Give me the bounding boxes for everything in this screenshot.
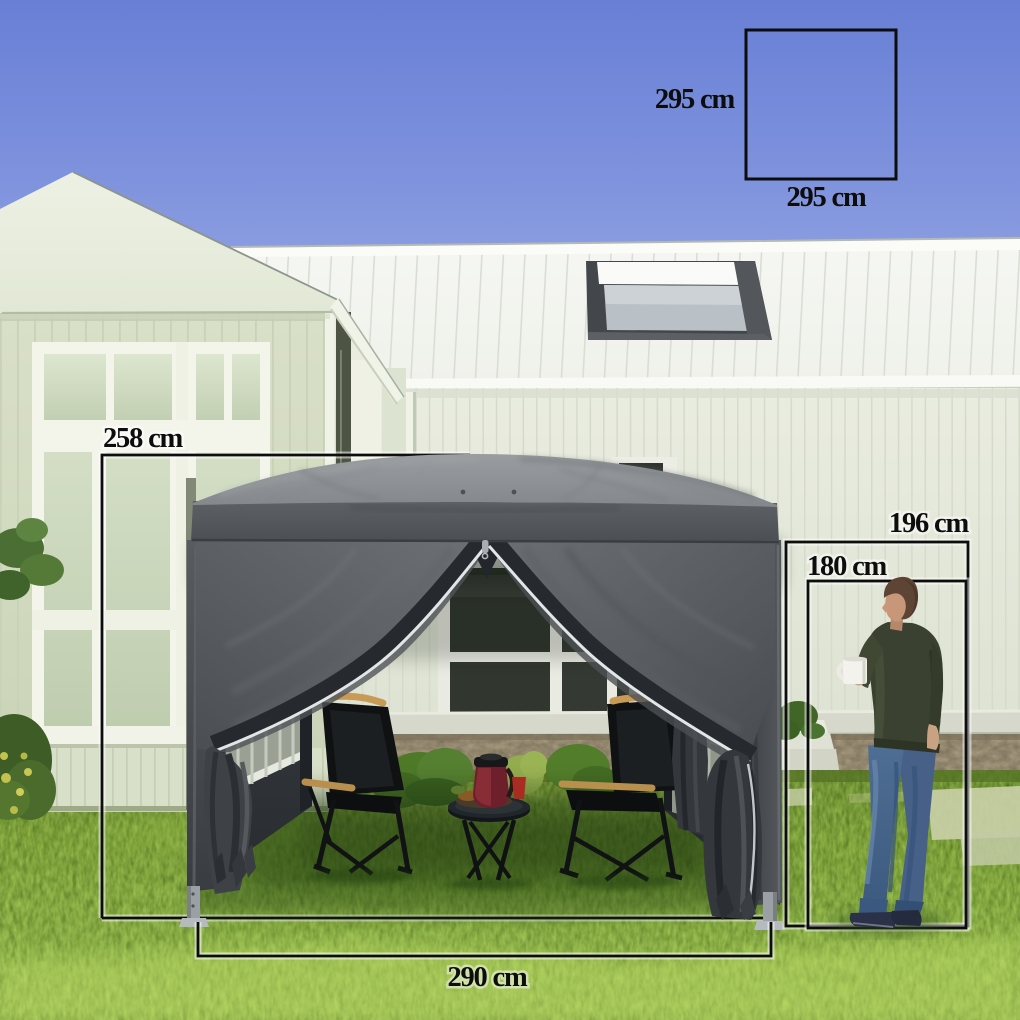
svg-text:295 cm: 295 cm bbox=[786, 182, 867, 213]
svg-text:196 cm: 196 cm bbox=[889, 508, 970, 539]
svg-text:258 cm: 258 cm bbox=[103, 423, 184, 454]
svg-text:180 cm: 180 cm bbox=[807, 551, 888, 582]
svg-text:290 cm: 290 cm bbox=[447, 962, 528, 993]
svg-text:295 cm: 295 cm bbox=[655, 84, 736, 115]
